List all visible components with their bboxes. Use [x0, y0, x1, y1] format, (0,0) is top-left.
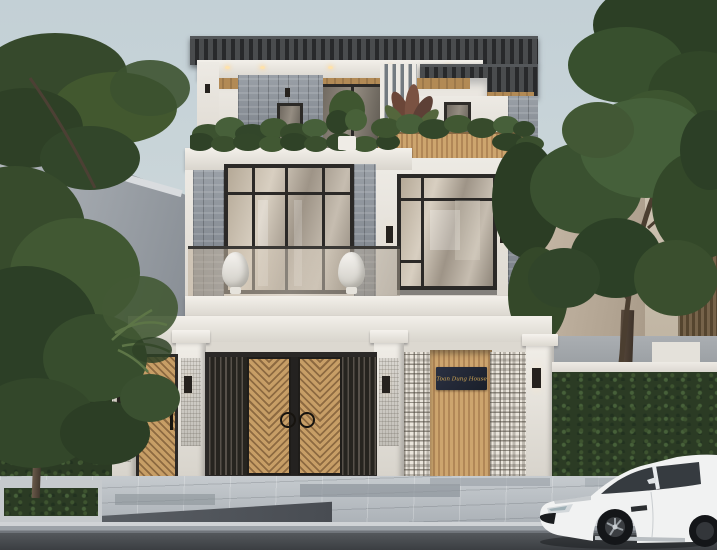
chevron-slats: [320, 359, 340, 473]
door-transom-mullion: [228, 192, 350, 195]
pillar-lamp: [532, 368, 541, 388]
white-pot: [338, 136, 356, 150]
balcony-planter-vase: [338, 252, 365, 288]
house-name-text: Toan Dung House: [436, 375, 487, 381]
paving-accent-tile: [115, 494, 215, 505]
car-front-wheel: [597, 509, 633, 545]
white-sports-car: [533, 444, 717, 550]
balcony-glass-railing: [188, 246, 400, 299]
architectural-render: Toan Dung House: [0, 0, 717, 550]
pillar-cap: [370, 330, 408, 343]
window-mullion: [401, 260, 424, 263]
gate-ring-handle[interactable]: [299, 412, 315, 428]
breeze-block-wall: [490, 352, 528, 480]
pillar-cap: [522, 334, 558, 346]
main-gate-slat-panel-right: [342, 357, 377, 475]
window-interior-reflection: [455, 200, 480, 260]
planter-bed-plants: [4, 488, 98, 516]
breeze-block-wall: [404, 352, 432, 480]
wall-sconce: [386, 226, 393, 243]
tree-canopy: [0, 33, 190, 468]
main-gate[interactable]: [205, 352, 377, 480]
pillar-lamp: [382, 376, 390, 393]
house-name-plaque: Toan Dung House: [436, 367, 487, 390]
gate-ring-handle[interactable]: [280, 412, 296, 428]
trees-left: [0, 28, 215, 480]
pillar-stone-insert: [379, 358, 399, 446]
chevron-slats: [249, 359, 269, 473]
balcony-planter-vase: [222, 252, 249, 288]
window-mullion: [421, 178, 424, 286]
paving-accent-tile: [430, 478, 550, 486]
